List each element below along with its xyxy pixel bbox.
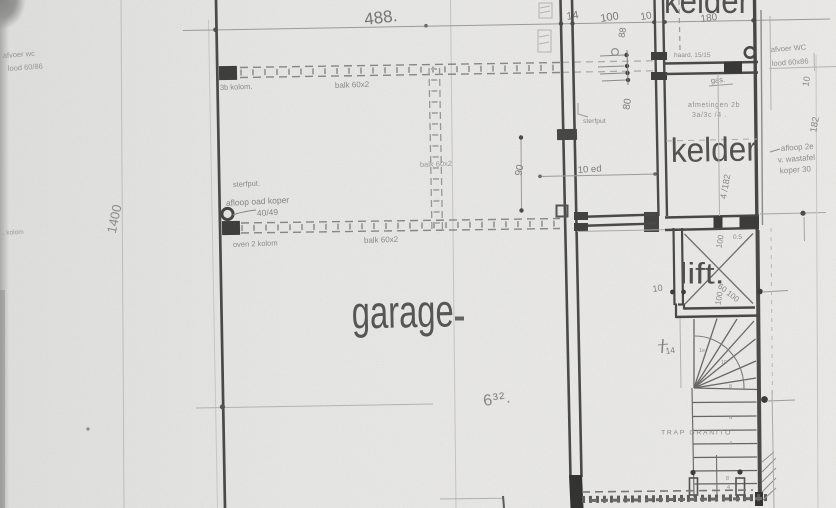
- svg-text:10: 10: [652, 283, 663, 294]
- svg-text:10: 10: [721, 360, 727, 366]
- svg-text:8: 8: [726, 476, 729, 482]
- svg-text:balk 60x2: balk 60x2: [420, 159, 452, 169]
- svg-text:10: 10: [801, 76, 813, 88]
- svg-text:1e: 1e: [699, 348, 705, 354]
- svg-text:0.5: 0.5: [733, 234, 742, 241]
- svg-text:haard. 15/15: haard. 15/15: [674, 52, 711, 59]
- svg-text:488.: 488.: [363, 6, 398, 29]
- svg-text:afmetingen 2b: afmetingen 2b: [688, 102, 740, 109]
- svg-text:garage: garage: [351, 284, 454, 338]
- svg-text:40/49: 40/49: [257, 207, 279, 218]
- svg-text:kelder: kelder: [664, 0, 749, 21]
- svg-text:10 ed: 10 ed: [577, 163, 601, 176]
- svg-text:balk 60x2: balk 60x2: [335, 80, 370, 90]
- svg-text:oven 2 kolom: oven 2 kolom: [233, 238, 278, 249]
- svg-text:balk 60x2: balk 60x2: [364, 235, 399, 245]
- svg-text:10: 10: [640, 10, 653, 23]
- svg-text:8: 8: [729, 384, 732, 390]
- svg-text:.. kolom: .. kolom: [1, 229, 24, 237]
- svg-text:14: 14: [665, 345, 676, 356]
- svg-text:4: 4: [729, 441, 732, 447]
- svg-text:sterfput: sterfput: [583, 118, 606, 125]
- svg-text:kelder: kelder: [670, 131, 757, 170]
- svg-text:TRAP GRANITO: TRAP GRANITO: [661, 430, 732, 437]
- svg-text:88: 88: [617, 27, 629, 39]
- svg-text:3b kolom.: 3b kolom.: [220, 82, 253, 92]
- svg-text:sterfput.: sterfput.: [233, 179, 261, 189]
- svg-text:3a/3c /4 .: 3a/3c /4 .: [692, 112, 727, 119]
